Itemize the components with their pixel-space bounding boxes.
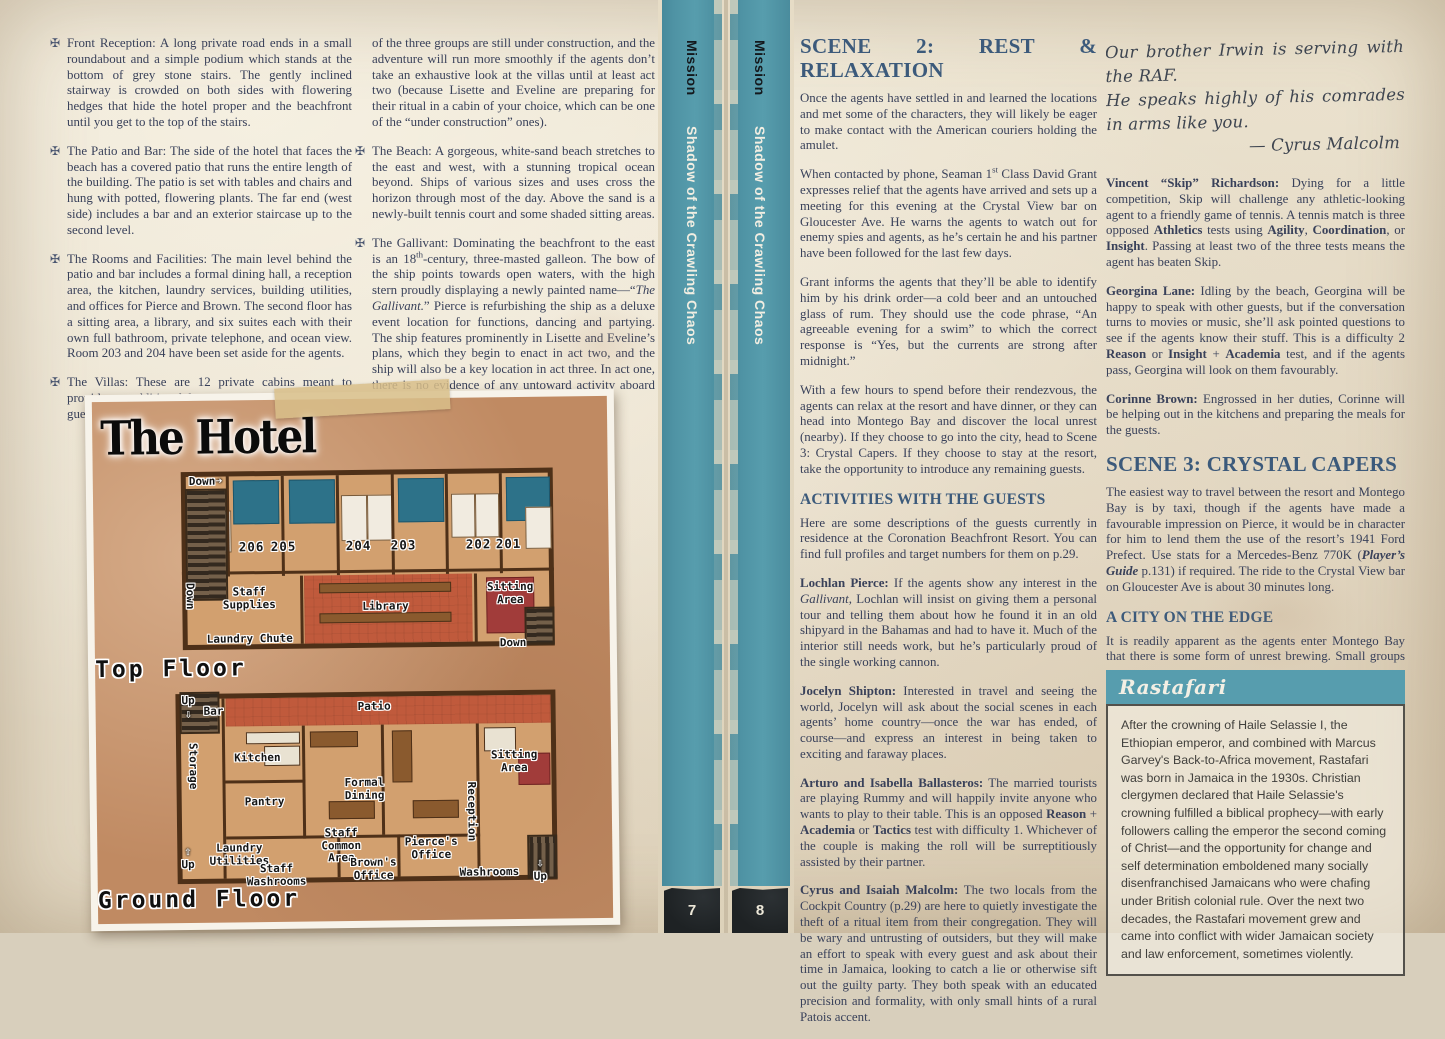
- bullet-text: The Patio and Bar: The side of the hotel…: [67, 144, 352, 239]
- activities-heading: ACTIVITIES WITH THE GUESTS: [800, 491, 1097, 509]
- list-item: ✠ The Rooms and Facilities: The main lev…: [50, 252, 352, 363]
- paragraph: With a few hours to spend before their r…: [800, 383, 1097, 478]
- map-label: Brown's Office: [345, 856, 401, 882]
- paragraph: Once the agents have settled in and lear…: [800, 91, 1097, 154]
- scene-2-heading: SCENE 2: REST & RELAXATION: [800, 34, 1097, 82]
- bed: [341, 495, 368, 541]
- sidebar-text: After the crowning of Haile Selassie I, …: [1106, 704, 1405, 976]
- note-line: He speaks highly of his comrades in arms…: [1106, 83, 1405, 137]
- left-column-1: ✠ Front Reception: A long private road e…: [50, 36, 352, 436]
- handwritten-note: Our brother Irwin is serving with the RA…: [1106, 35, 1405, 161]
- cross-bullet-icon: ✠: [50, 36, 67, 131]
- map-label: Sitting Area: [486, 581, 534, 607]
- map-label: Down: [500, 637, 527, 650]
- hotel-map: The Hotel 206 205 20: [85, 389, 621, 931]
- map-label: Pantry: [245, 796, 285, 809]
- right-column-1: SCENE 2: REST & RELAXATION Once the agen…: [800, 34, 1097, 1039]
- dining-table: [310, 731, 358, 748]
- bed: [451, 493, 476, 537]
- guest-paragraph: Georgina Lane: Idling by the beach, Geor…: [1106, 284, 1405, 379]
- bullet-text: Front Reception: A long private road end…: [67, 36, 352, 131]
- library-shelf: [319, 582, 451, 594]
- room-rug: [398, 478, 445, 523]
- spine-wear: [714, 0, 722, 886]
- map-label: Down: [189, 475, 216, 488]
- room-number: 204: [346, 540, 372, 553]
- paragraph: The easiest way to travel between the re…: [1106, 485, 1405, 596]
- bullet-text: The Beach: A gorgeous, white-sand beach …: [372, 144, 655, 223]
- spine-title: Shadow of the Crawling Chaos: [752, 126, 768, 345]
- dining-table: [413, 800, 459, 819]
- up-arrow-icon: ⇧: [184, 844, 191, 858]
- guest-paragraph: Arturo and Isabella Ballasteros: The mar…: [800, 776, 1097, 871]
- cross-bullet-icon: ✠: [50, 375, 67, 422]
- paragraph: Grant informs the agents that they’ll be…: [800, 275, 1097, 370]
- map-label: Staff Washrooms: [237, 862, 315, 888]
- guest-paragraph: Vincent “Skip” Richardson: Dying for a l…: [1106, 176, 1405, 271]
- down-arrow-icon: ⇩: [185, 706, 192, 720]
- bed: [367, 494, 394, 540]
- top-floor-title: Top Floor: [95, 655, 247, 683]
- map-label: Laundry Chute: [207, 633, 293, 647]
- guest-paragraph: Corinne Brown: Engrossed in her duties, …: [1106, 392, 1405, 439]
- map-label: Formal Dining: [334, 776, 394, 802]
- room-rug: [289, 479, 336, 524]
- map-label: Reception: [464, 781, 477, 841]
- scene-3-heading: SCENE 3: CRYSTAL CAPERS: [1106, 452, 1405, 476]
- spine-strip-left: Mission Shadow of the Crawling Chaos: [662, 0, 722, 886]
- paragraph: Here are some descriptions of the guests…: [800, 516, 1097, 563]
- spine-text: Mission Shadow of the Crawling Chaos: [751, 40, 769, 345]
- map-label-up-arrow: Up⇩: [181, 695, 195, 721]
- book-spine: Mission Shadow of the Crawling Chaos Mis…: [658, 0, 794, 933]
- cross-bullet-icon: ✠: [50, 144, 67, 239]
- spine-strip-right: Mission Shadow of the Crawling Chaos: [730, 0, 790, 886]
- right-arrow-icon: ➔: [215, 474, 222, 488]
- map-label: Staff Supplies: [214, 586, 284, 612]
- guest-paragraph: Jocelyn Shipton: Interested in travel an…: [800, 684, 1097, 763]
- bed: [475, 493, 500, 537]
- page-number: 8: [732, 888, 788, 933]
- map-label: Down: [183, 583, 196, 610]
- spine-series: Mission: [684, 40, 700, 96]
- room-number: 201: [496, 538, 522, 551]
- city-heading: A CITY ON THE EDGE: [1106, 609, 1405, 627]
- stairs-top-right: [524, 607, 554, 645]
- map-label: Pierce's Office: [403, 836, 459, 862]
- map-label: Kitchen: [234, 752, 281, 765]
- page-number: 7: [664, 888, 720, 933]
- room-number: 203: [391, 539, 417, 552]
- list-item: ✠ The Patio and Bar: The side of the hot…: [50, 144, 352, 239]
- room-number: 205: [271, 541, 297, 554]
- map-label: Washrooms: [460, 866, 520, 879]
- guest-paragraph: Lochlan Pierce: If the agents show any i…: [800, 576, 1097, 671]
- dining-table: [329, 801, 375, 820]
- map-label: Bar: [204, 706, 224, 719]
- spine-title: Shadow of the Crawling Chaos: [684, 126, 700, 345]
- library-shelf: [319, 612, 451, 624]
- dining-table: [392, 730, 413, 782]
- hotel-map-canvas: The Hotel 206 205 20: [92, 396, 613, 924]
- bullet-text: The Rooms and Facilities: The main level…: [67, 252, 352, 363]
- paragraph: It is readily apparent as the agents ent…: [1106, 634, 1405, 666]
- left-column-2: of the three groups are still under cons…: [355, 36, 655, 423]
- bed: [525, 507, 552, 549]
- map-label: Up: [534, 869, 547, 882]
- down-arrow-icon: ⇩: [536, 856, 543, 870]
- book-spread: ✠ Front Reception: A long private road e…: [0, 0, 1445, 933]
- list-item: ✠ Front Reception: A long private road e…: [50, 36, 352, 131]
- room-number: 202: [466, 538, 492, 551]
- list-item: ✠ The Beach: A gorgeous, white-sand beac…: [355, 144, 655, 223]
- map-label: Up: [181, 694, 194, 707]
- right-column-2: Our brother Irwin is serving with the RA…: [1106, 34, 1405, 666]
- cross-bullet-icon: ✠: [50, 252, 67, 363]
- map-label-down-arrow: Down➔: [189, 475, 223, 489]
- map-label: Patio: [358, 701, 391, 714]
- guest-paragraph: Cyrus and Isaiah Malcolm: The two locals…: [800, 883, 1097, 1025]
- spine-series: Mission: [752, 40, 768, 96]
- ground-floor-title: Ground Floor: [98, 886, 300, 914]
- continuation-paragraph: of the three groups are still under cons…: [355, 36, 655, 131]
- spine-seam: [724, 0, 728, 933]
- sidebar-title: Rastafari: [1106, 670, 1405, 704]
- map-label: Library: [362, 600, 409, 613]
- map-label: Up: [181, 857, 194, 870]
- map-label-up-arrow: ⇩Up: [533, 857, 547, 883]
- map-label-up-arrow: ⇧Up: [181, 845, 195, 871]
- note-line: Our brother Irwin is serving with the RA…: [1106, 35, 1405, 89]
- room-number: 206: [239, 541, 265, 554]
- map-label: Storage: [186, 743, 199, 790]
- spine-text: Mission Shadow of the Crawling Chaos: [683, 40, 701, 345]
- rastafari-sidebar: Rastafari After the crowning of Haile Se…: [1106, 670, 1405, 976]
- spine-wear: [730, 0, 738, 886]
- map-label: Sitting Area: [489, 749, 539, 775]
- room-rug: [233, 480, 280, 525]
- paragraph: When contacted by phone, Seaman 1st Clas…: [800, 167, 1097, 262]
- kitchen-counter: [246, 732, 300, 745]
- cross-bullet-icon: ✠: [355, 144, 372, 223]
